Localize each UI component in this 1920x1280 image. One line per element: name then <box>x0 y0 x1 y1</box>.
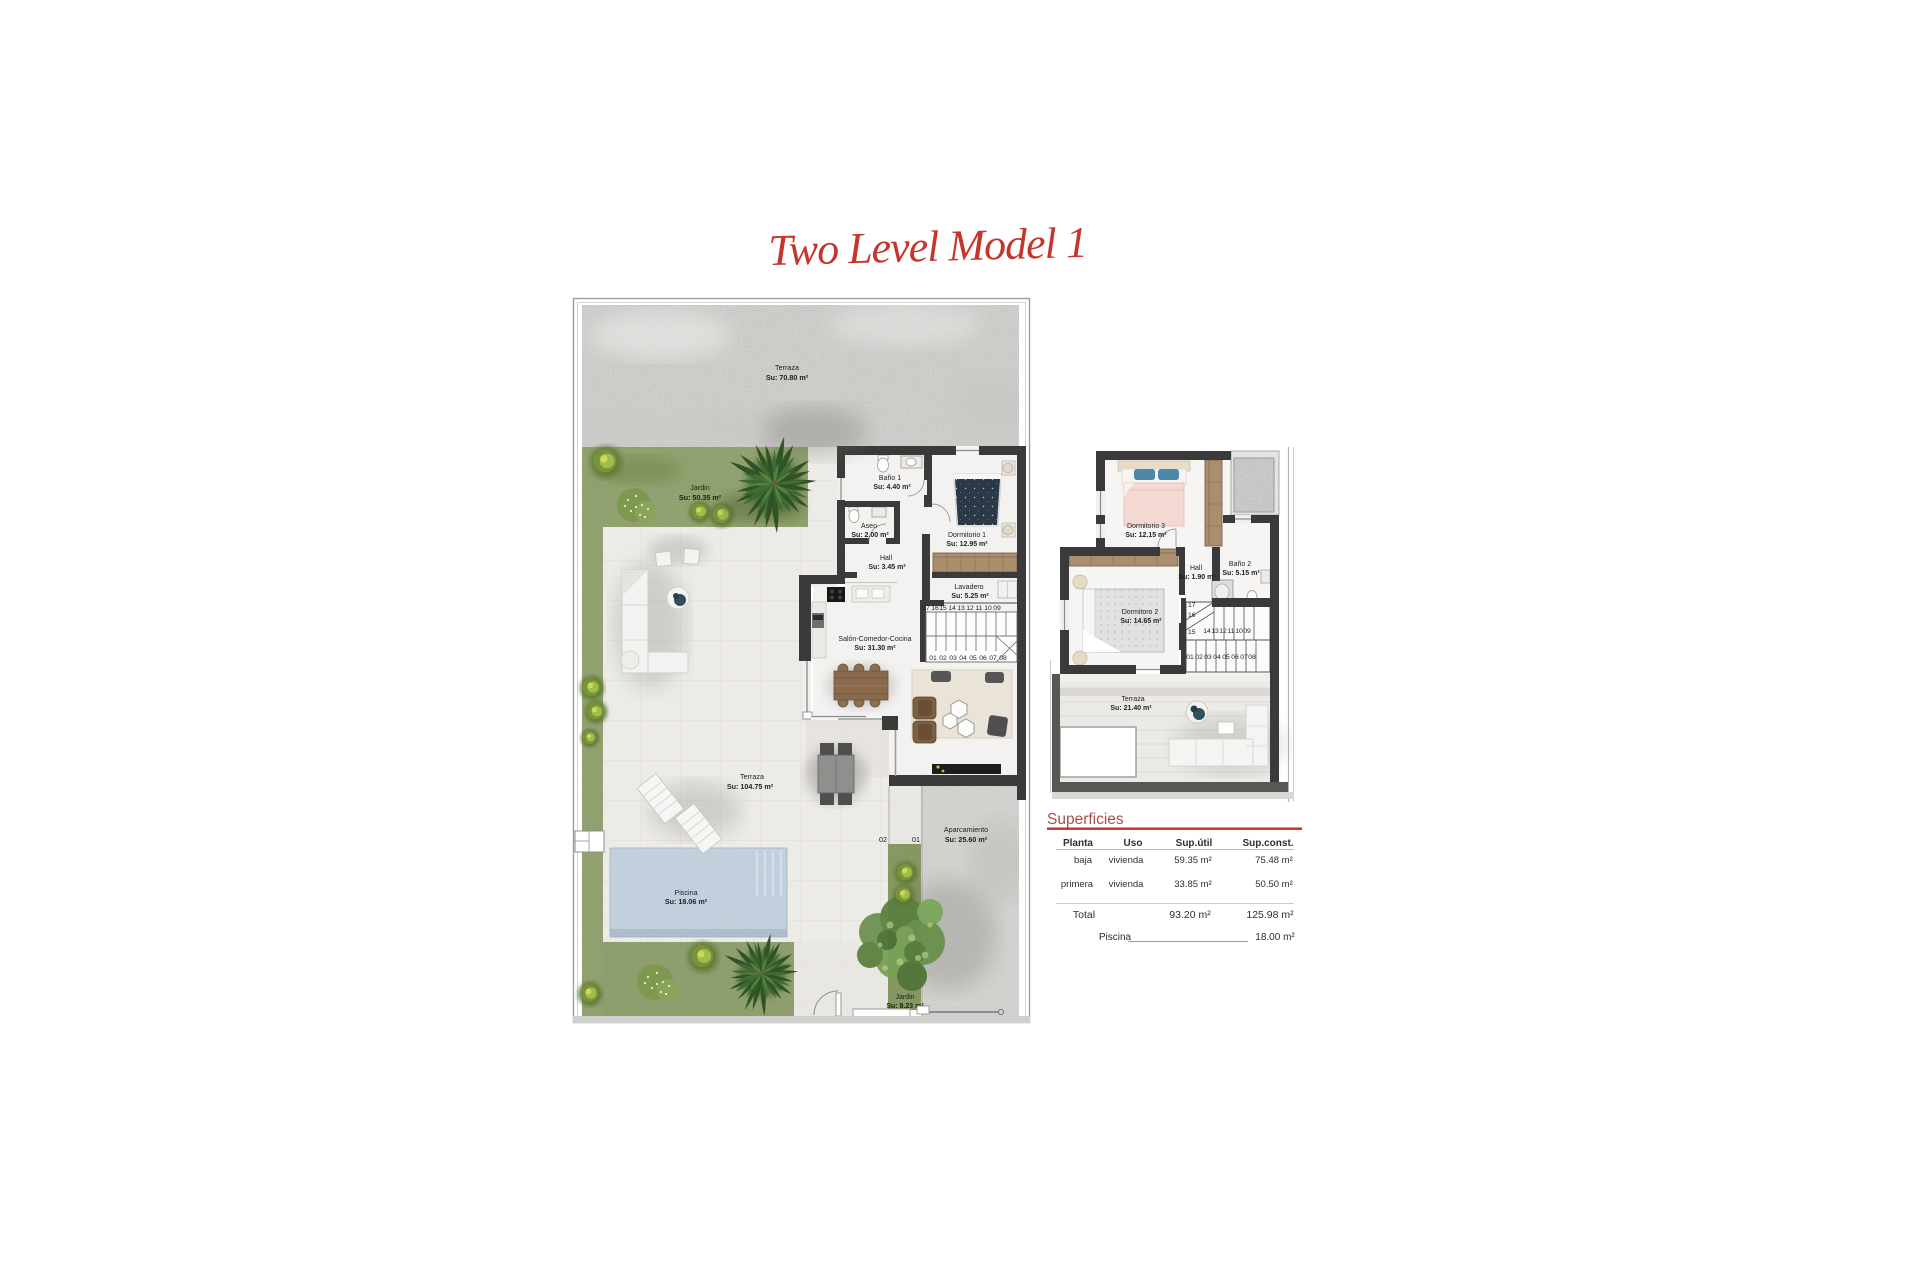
svg-text:Su: 31.30 m²: Su: 31.30 m² <box>854 645 896 652</box>
svg-text:Superficies: Superficies <box>1047 811 1124 828</box>
svg-text:01: 01 <box>912 835 920 844</box>
svg-text:Total: Total <box>1073 909 1095 921</box>
svg-text:Su: 70.80 m²: Su: 70.80 m² <box>766 373 809 382</box>
svg-text:05: 05 <box>969 655 977 662</box>
svg-text:09: 09 <box>993 605 1001 612</box>
svg-text:Sup.útil: Sup.útil <box>1176 838 1213 849</box>
svg-text:Uso: Uso <box>1124 838 1143 849</box>
svg-text:Su: 12.95 m²: Su: 12.95 m² <box>946 541 988 548</box>
svg-text:Su: 5.25 m²: Su: 5.25 m² <box>951 593 989 600</box>
svg-text:Jardin: Jardin <box>895 994 914 1001</box>
svg-text:Dormitoro 2: Dormitoro 2 <box>1122 609 1159 616</box>
svg-text:93.20 m²: 93.20 m² <box>1169 909 1211 921</box>
svg-text:Su: 21.40 m²: Su: 21.40 m² <box>1110 705 1152 712</box>
svg-text:Su: 1.90 m²: Su: 1.90 m² <box>1178 574 1216 581</box>
svg-text:Su: 14.65 m²: Su: 14.65 m² <box>1120 618 1162 625</box>
svg-text:50.50 m²: 50.50 m² <box>1255 879 1293 890</box>
svg-text:14: 14 <box>1203 628 1211 635</box>
svg-text:Su: 25.60 m²: Su: 25.60 m² <box>945 835 988 844</box>
svg-text:Dormitorio 1: Dormitorio 1 <box>948 532 986 539</box>
svg-text:Planta: Planta <box>1063 838 1093 849</box>
svg-text:Su: 12.15 m²: Su: 12.15 m² <box>1125 532 1167 539</box>
svg-text:16: 16 <box>931 605 939 612</box>
svg-text:Terraza: Terraza <box>740 772 764 781</box>
svg-text:14: 14 <box>948 605 956 612</box>
svg-text:Lavadero: Lavadero <box>954 584 983 591</box>
svg-text:02: 02 <box>939 655 947 662</box>
svg-text:07: 07 <box>989 655 997 662</box>
svg-text:Su: 5.15 m²: Su: 5.15 m² <box>1222 570 1260 577</box>
svg-text:11: 11 <box>1227 628 1234 635</box>
svg-text:06: 06 <box>979 655 987 662</box>
svg-text:17: 17 <box>922 605 930 612</box>
svg-text:09: 09 <box>1243 628 1251 635</box>
svg-text:baja: baja <box>1074 855 1093 866</box>
svg-text:Su: 3.45 m²: Su: 3.45 m² <box>868 564 906 571</box>
svg-text:12: 12 <box>1219 628 1227 635</box>
svg-text:Aparcamiento: Aparcamiento <box>944 825 988 834</box>
svg-text:04: 04 <box>1213 654 1221 661</box>
svg-text:04: 04 <box>959 655 967 662</box>
svg-text:03: 03 <box>1204 654 1212 661</box>
svg-text:13: 13 <box>957 605 965 612</box>
svg-text:Terraza: Terraza <box>775 363 799 372</box>
svg-text:Dormitorio 3: Dormitorio 3 <box>1127 523 1165 530</box>
svg-text:Hall: Hall <box>880 555 893 562</box>
svg-text:03: 03 <box>949 655 957 662</box>
svg-text:Terraza: Terraza <box>1121 696 1144 703</box>
svg-text:10: 10 <box>1235 628 1243 635</box>
svg-text:06: 06 <box>1231 654 1239 661</box>
svg-text:12: 12 <box>966 605 974 612</box>
svg-text:02: 02 <box>879 835 887 844</box>
svg-text:Piscina: Piscina <box>674 888 697 897</box>
svg-text:Baño 2: Baño 2 <box>1229 561 1251 568</box>
svg-text:Hall: Hall <box>1190 565 1203 572</box>
svg-text:17: 17 <box>1188 602 1196 609</box>
svg-text:59.35 m²: 59.35 m² <box>1174 855 1212 866</box>
svg-text:33.85 m²: 33.85 m² <box>1174 879 1212 890</box>
svg-text:Two Level Model 1: Two Level Model 1 <box>768 218 1087 275</box>
svg-text:08: 08 <box>999 655 1007 662</box>
svg-text:01: 01 <box>1186 654 1194 661</box>
svg-text:Su: 50.35 m²: Su: 50.35 m² <box>679 493 722 502</box>
svg-text:Sup.const.: Sup.const. <box>1242 838 1293 849</box>
svg-text:Baño 1: Baño 1 <box>879 475 901 482</box>
svg-text:11: 11 <box>975 605 982 612</box>
svg-text:16: 16 <box>1188 612 1196 619</box>
svg-text:10: 10 <box>984 605 992 612</box>
svg-text:Aseo: Aseo <box>861 523 877 530</box>
svg-text:01: 01 <box>929 655 937 662</box>
svg-text:125.98 m²: 125.98 m² <box>1246 909 1294 921</box>
svg-text:Jardin: Jardin <box>690 483 710 492</box>
svg-text:Su: 4.40 m²: Su: 4.40 m² <box>873 484 911 491</box>
svg-text:primera: primera <box>1061 879 1094 890</box>
svg-text:08: 08 <box>1248 654 1256 661</box>
svg-text:Salón-Comedor-Cocina: Salón-Comedor-Cocina <box>838 636 911 643</box>
svg-text:02: 02 <box>1195 654 1203 661</box>
svg-text:07: 07 <box>1240 654 1248 661</box>
svg-text:vivienda: vivienda <box>1109 855 1145 866</box>
svg-text:15: 15 <box>939 605 947 612</box>
svg-text:75.48 m²: 75.48 m² <box>1255 855 1293 866</box>
svg-text:Su: 18.06 m²: Su: 18.06 m² <box>665 897 708 906</box>
svg-text:Su: 104.75 m²: Su: 104.75 m² <box>727 782 774 791</box>
svg-text:Su: 2.00 m²: Su: 2.00 m² <box>851 532 889 539</box>
svg-text:15: 15 <box>1188 629 1196 636</box>
svg-text:vivienda: vivienda <box>1109 879 1145 890</box>
svg-text:Piscina: Piscina <box>1099 932 1132 943</box>
svg-text:13: 13 <box>1211 628 1219 635</box>
svg-text:05: 05 <box>1222 654 1230 661</box>
svg-text:18.00 m²: 18.00 m² <box>1255 932 1295 943</box>
